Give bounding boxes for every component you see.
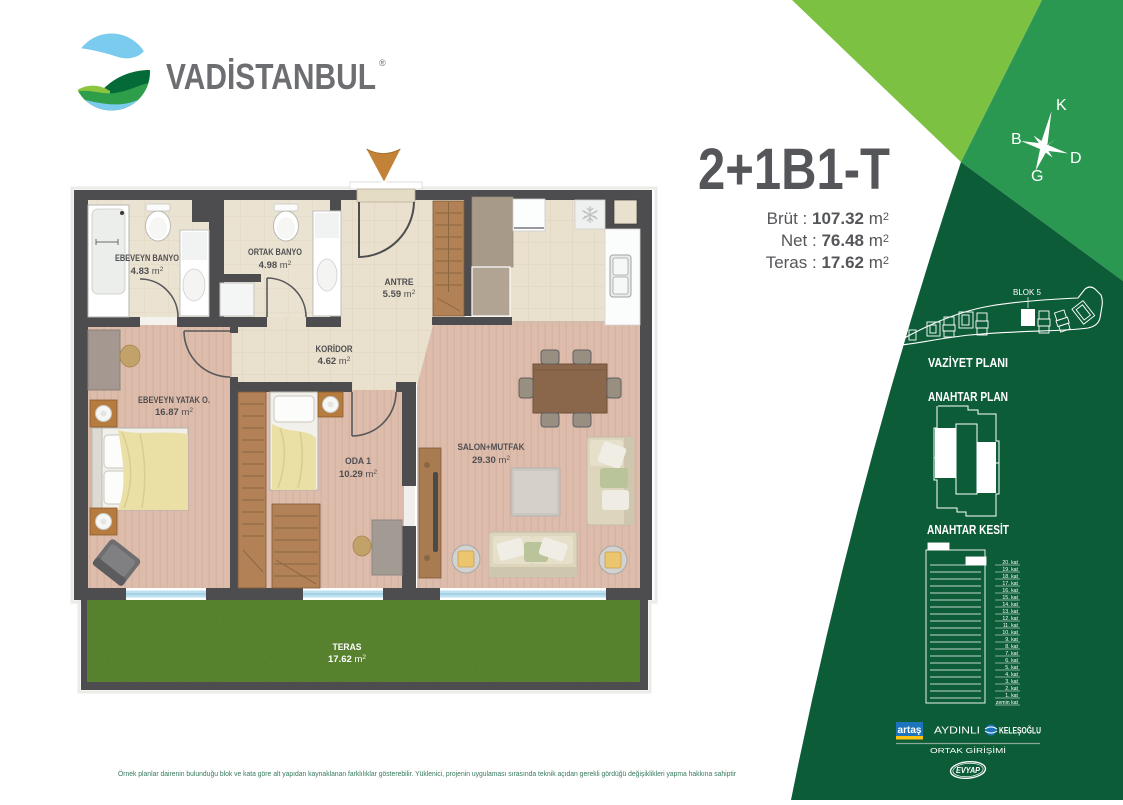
svg-text:ORTAK BANYO: ORTAK BANYO <box>248 247 302 258</box>
svg-text:VADİSTANBUL: VADİSTANBUL <box>166 56 376 97</box>
svg-text:AYDINLI: AYDINLI <box>934 726 980 737</box>
svg-text:17.62 m2: 17.62 m2 <box>328 654 366 665</box>
svg-text:SALON+MUTFAK: SALON+MUTFAK <box>458 442 525 453</box>
svg-text:Teras : 17.62 m2: Teras : 17.62 m2 <box>766 253 889 272</box>
svg-text:Net : 76.48 m2: Net : 76.48 m2 <box>781 231 889 250</box>
svg-text:EBEVEYN YATAK O.: EBEVEYN YATAK O. <box>138 395 210 406</box>
svg-text:D: D <box>1070 150 1082 167</box>
svg-text:ANTRE: ANTRE <box>385 277 414 288</box>
svg-text:29.30 m2: 29.30 m2 <box>472 455 510 466</box>
svg-text:2+1B1-T: 2+1B1-T <box>698 137 890 202</box>
svg-text:BLOK 5: BLOK 5 <box>1013 288 1042 297</box>
svg-text:10.29 m2: 10.29 m2 <box>339 469 377 480</box>
svg-text:EBEVEYN BANYO: EBEVEYN BANYO <box>115 253 179 264</box>
svg-text:artaş: artaş <box>898 725 922 736</box>
svg-text:VAZİYET PLANI: VAZİYET PLANI <box>928 355 1008 370</box>
svg-text:TERAS: TERAS <box>333 642 362 653</box>
svg-text:®: ® <box>379 58 386 68</box>
svg-text:K: K <box>1056 97 1067 114</box>
svg-text:Brüt : 107.32 m2: Brüt : 107.32 m2 <box>767 209 889 228</box>
svg-text:KORİDOR: KORİDOR <box>316 344 353 355</box>
svg-text:G: G <box>1031 168 1043 185</box>
svg-text:Örnek planlar dairenin bulundu: Örnek planlar dairenin bulunduğu blok ve… <box>118 769 737 778</box>
svg-text:5.59 m2: 5.59 m2 <box>383 289 416 300</box>
svg-text:KELEŞOĞLU: KELEŞOĞLU <box>999 725 1041 737</box>
svg-text:EVYAP: EVYAP <box>956 766 981 775</box>
svg-text:ODA 1: ODA 1 <box>345 456 372 467</box>
svg-text:16.87 m2: 16.87 m2 <box>155 407 193 418</box>
svg-text:ANAHTAR KESİT: ANAHTAR KESİT <box>927 522 1009 537</box>
svg-text:4.98 m2: 4.98 m2 <box>259 260 292 271</box>
svg-text:ORTAK GİRİŞİMİ: ORTAK GİRİŞİMİ <box>930 746 1006 755</box>
svg-text:4.62 m2: 4.62 m2 <box>318 356 351 367</box>
svg-text:ANAHTAR PLAN: ANAHTAR PLAN <box>928 389 1008 404</box>
svg-text:B: B <box>1011 131 1022 148</box>
svg-text:4.83 m2: 4.83 m2 <box>131 266 164 277</box>
